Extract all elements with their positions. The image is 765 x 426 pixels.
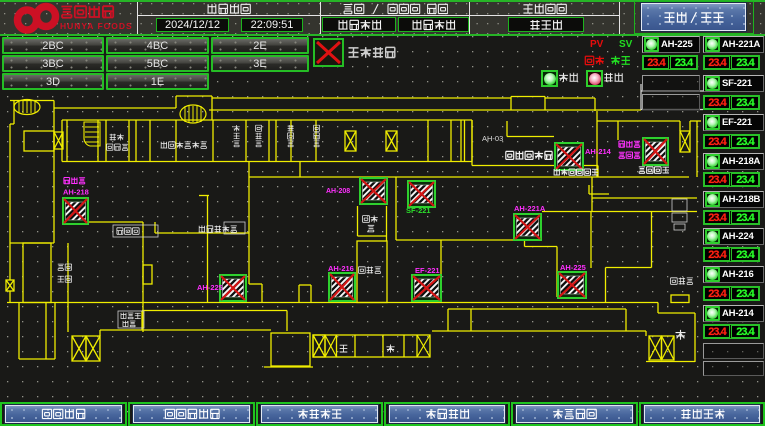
svg-text:AH-221A: AH-221A: [514, 204, 546, 213]
svg-text:EF-221: EF-221: [415, 266, 440, 275]
svg-text:AH-214: AH-214: [585, 147, 612, 156]
svg-text:AH-225: AH-225: [197, 283, 223, 292]
svg-text:AH-03: AH-03: [482, 134, 503, 143]
svg-text:AH-216: AH-216: [328, 264, 354, 273]
svg-text:SF-221: SF-221: [406, 206, 431, 215]
svg-text:AH-218: AH-218: [63, 188, 89, 197]
svg-text:AH-208: AH-208: [326, 188, 350, 195]
svg-text:AH-225: AH-225: [560, 263, 586, 272]
